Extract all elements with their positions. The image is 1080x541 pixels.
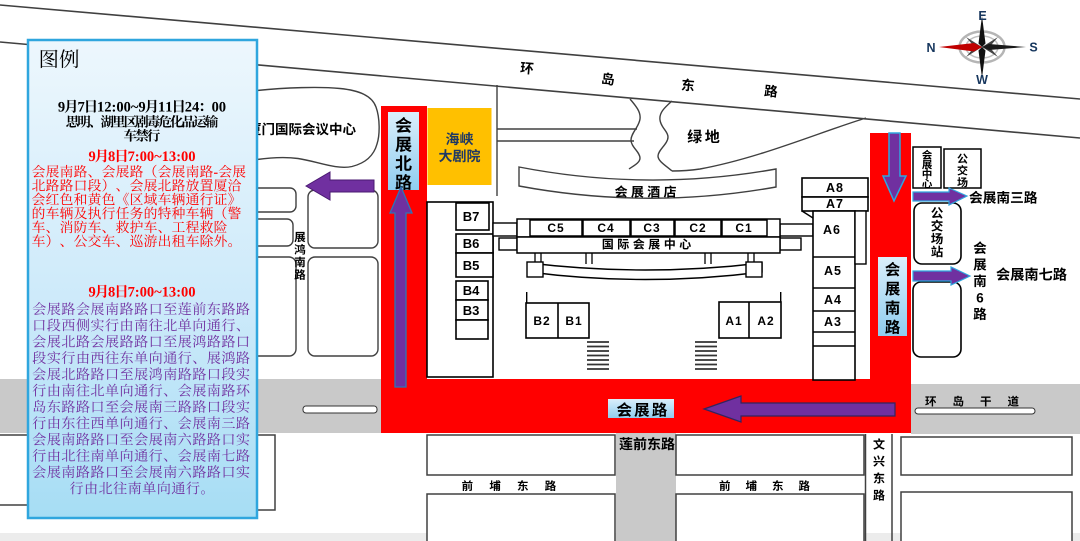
svg-text:A2: A2: [757, 314, 774, 328]
svg-text:A6: A6: [823, 223, 841, 237]
svg-text:A1: A1: [725, 314, 742, 328]
svg-text:C5: C5: [547, 221, 564, 235]
svg-text:B2: B2: [533, 314, 550, 328]
svg-text:C3: C3: [643, 221, 660, 235]
svg-text:B4: B4: [463, 283, 480, 298]
svg-text:B6: B6: [463, 236, 480, 251]
svg-text:B7: B7: [463, 209, 480, 224]
svg-text:C2: C2: [689, 221, 706, 235]
svg-text:N: N: [926, 41, 935, 55]
svg-text:B3: B3: [463, 303, 480, 318]
svg-text:C4: C4: [597, 221, 614, 235]
svg-text:B5: B5: [463, 258, 480, 273]
svg-text:E: E: [978, 9, 986, 23]
svg-text:S: S: [1029, 41, 1037, 55]
svg-text:A4: A4: [824, 293, 842, 307]
svg-text:A5: A5: [824, 264, 842, 278]
svg-text:A3: A3: [824, 315, 842, 329]
svg-text:A7: A7: [826, 197, 844, 211]
svg-text:C1: C1: [735, 221, 752, 235]
svg-text:B1: B1: [565, 314, 582, 328]
svg-text:A8: A8: [826, 181, 844, 195]
svg-text:W: W: [976, 73, 988, 87]
